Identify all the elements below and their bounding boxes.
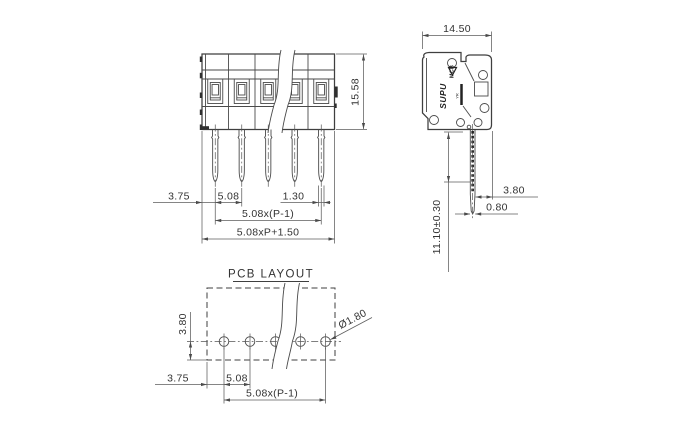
side-solder-tail bbox=[470, 124, 475, 220]
wire-entry-windows bbox=[208, 79, 329, 104]
dim-front-pitch: 5.08 bbox=[218, 191, 240, 203]
dim-side-width: 14.50 bbox=[443, 23, 471, 35]
dim-pcb-row-offset: 3.80 bbox=[177, 313, 189, 335]
technical-drawing-page: 15.58 3.75 5.08 1.30 5.08x(P-1) 5.08xP+1… bbox=[0, 0, 680, 440]
wire-entry-window bbox=[234, 79, 249, 104]
wire-entry-window bbox=[208, 79, 223, 104]
terminal-block-drawing: 15.58 3.75 5.08 1.30 5.08x(P-1) 5.08xP+1… bbox=[0, 0, 680, 440]
dim-front-edge-offset: 3.75 bbox=[168, 191, 190, 203]
side-latch bbox=[335, 87, 338, 98]
dim-front-pin-width: 1.30 bbox=[283, 191, 305, 203]
solder-pin bbox=[318, 125, 325, 189]
dim-pcb-span: 5.08x(P-1) bbox=[246, 388, 298, 400]
cert-mark: YR bbox=[455, 93, 460, 99]
wire-entry-window bbox=[261, 79, 276, 104]
front-body bbox=[202, 54, 335, 130]
solder-pin bbox=[212, 125, 219, 189]
dim-side-tail-thickness: 0.80 bbox=[486, 202, 508, 214]
series-label: MCB bbox=[450, 65, 456, 78]
side-dimensions: 14.50 3.80 0.80 11.10±0.30 bbox=[423, 23, 539, 272]
front-view bbox=[200, 50, 338, 188]
solder-pin bbox=[291, 125, 298, 189]
dim-front-span: 5.08x(P-1) bbox=[242, 208, 294, 220]
dim-front-overall: 5.08xP+1.50 bbox=[237, 227, 300, 239]
solder-pin bbox=[238, 125, 245, 189]
dim-side-tail-offset: 3.80 bbox=[503, 185, 525, 197]
break-lines-front bbox=[268, 50, 295, 133]
dim-pcb-pitch: 5.08 bbox=[226, 373, 248, 385]
side-body bbox=[423, 53, 492, 130]
pcb-outline bbox=[207, 288, 335, 360]
pcb-dimensions: Ø1.80 3.80 3.75 5.08 5.08x(P-1) bbox=[155, 307, 372, 404]
side-view: SUPU MCB YR bbox=[423, 53, 492, 221]
solder-pin bbox=[265, 125, 272, 189]
dim-pcb-edge-offset: 3.75 bbox=[167, 373, 189, 385]
brand-logo: SUPU bbox=[438, 83, 448, 109]
wire-entry-window bbox=[314, 79, 329, 104]
break-lines-pcb bbox=[272, 283, 300, 369]
dim-side-tail-length: 11.10±0.30 bbox=[431, 200, 443, 255]
pcb-layout: PCB LAYOUT bbox=[187, 269, 341, 370]
pcb-layout-title: PCB LAYOUT bbox=[228, 269, 314, 281]
dim-front-height: 15.58 bbox=[350, 78, 362, 106]
solder-pins bbox=[212, 125, 325, 189]
